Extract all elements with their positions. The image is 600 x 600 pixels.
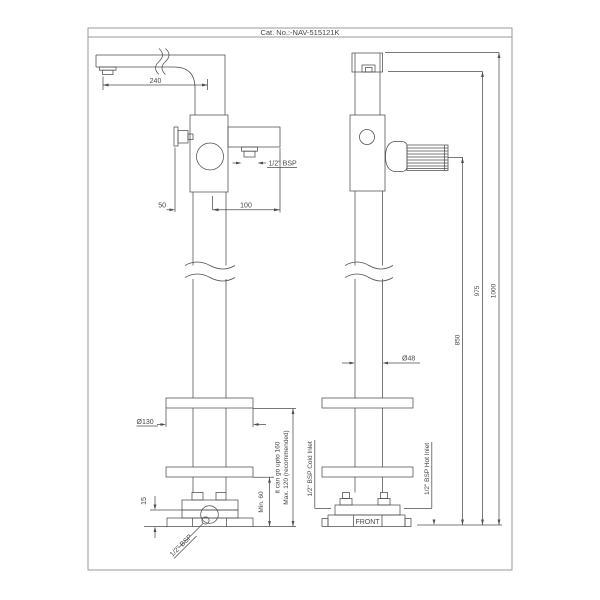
handle-neck (386, 142, 408, 172)
base-tab-top (343, 493, 350, 499)
upper-flange-front (322, 398, 413, 408)
upper-flange-side (166, 398, 253, 408)
column-front (355, 191, 383, 398)
dim-outlet-thread: 1/2" BSP (233, 161, 298, 168)
spout-front-cap-inner (355, 53, 380, 72)
dim-min-height-label: Min. 60 (258, 491, 265, 513)
hot-inlet-label: 1/2" BSP Hot Inlet (424, 443, 431, 495)
dim-handle-height: 850 (448, 158, 464, 526)
technical-drawing: Cat. No.:-NAV-515121K (0, 0, 600, 600)
outlet-fitting-lip (242, 147, 258, 151)
floor-extension-line (417, 520, 502, 526)
aerator-front-lip (362, 65, 375, 72)
aerator-front (366, 68, 373, 73)
column-break-line (185, 274, 235, 281)
aerator-lip (100, 67, 117, 70)
dim-outlet-thread-label: 1/2" BSP (269, 161, 297, 168)
column-break-line (345, 262, 393, 269)
column-below-flange-front (355, 477, 383, 493)
dim-handle-offset-label: 50 (158, 203, 166, 210)
dim-handle-offset: 50 (158, 148, 175, 213)
lower-flange-front (322, 467, 413, 477)
column-break-line (345, 274, 393, 281)
spout-break-line (156, 49, 163, 75)
dim-base-inlet-thread-label: 1/2" BSP (169, 533, 194, 558)
dim-spout-reach: 240 (103, 77, 208, 91)
column-side (193, 192, 226, 398)
dim-min-height: Min. 60 (253, 477, 274, 526)
front-marking-label: FRONT (355, 519, 380, 526)
side-view-dimensions: 240 1/2" BSP 50 100 Ø130 (103, 77, 297, 559)
dim-column-diameter: Ø48 (342, 356, 420, 365)
base-tab (192, 493, 203, 501)
aerator-body (103, 70, 114, 74)
spout-front-cap (352, 53, 383, 72)
diverter-knob (178, 131, 188, 144)
base-plate-steps (193, 518, 227, 527)
dim-spout-reach-label: 240 (150, 78, 162, 85)
outlet-arm (228, 127, 280, 147)
dim-cold-inlet: 1/2" BSP Cold Inlet (307, 440, 331, 509)
dim-flange-diameter: Ø130 (137, 409, 267, 428)
cold-inlet-label: 1/2" BSP Cold Inlet (307, 441, 314, 496)
drawing-sheet: Cat. No.:-NAV-515121K (0, 0, 600, 600)
spout-break-line (162, 49, 169, 75)
dim-overall-height: 1000 (385, 53, 500, 526)
column-below-flange (193, 477, 226, 493)
base-tab (378, 499, 390, 506)
dim-flange-diameter-label: Ø130 (137, 419, 154, 426)
base-wing (322, 519, 328, 527)
valve-body-front (350, 115, 385, 191)
dim-max-height-label-2: it can go upto 160 (275, 441, 282, 493)
column-between-flanges-front (355, 408, 383, 467)
outlet-fitting (244, 151, 255, 157)
column-break-line (185, 262, 235, 269)
base-tab (216, 493, 226, 501)
base-plate (167, 518, 253, 527)
dim-arm-length-label: 100 (240, 202, 252, 209)
dim-column-diameter-label: Ø48 (402, 356, 415, 363)
base-block-front (335, 505, 400, 515)
valve-body (190, 115, 228, 192)
side-view (96, 49, 280, 527)
upper-column-front (355, 72, 380, 115)
dim-base-plate-height-label: 15 (141, 497, 148, 505)
dim-arm-length: 100 (213, 148, 281, 213)
diverter-knob-cap (174, 127, 178, 146)
knurled-handle (407, 145, 448, 171)
valve-cartridge-circle (197, 143, 224, 170)
base-wing (405, 519, 411, 527)
dim-handle-height-label: 850 (455, 334, 462, 345)
front-view-dimensions: Ø48 850 975 1000 (307, 53, 502, 526)
base-tab (340, 499, 352, 506)
dim-base-inlet-thread: 1/2" BSP (169, 524, 203, 559)
dim-spout-height: 975 (388, 72, 484, 526)
title-block: Cat. No.:-NAV-515121K (88, 28, 512, 570)
column-between-flanges (193, 408, 226, 467)
dim-overall-height-label: 1000 (491, 283, 498, 298)
dim-base-plate-height: 15 (141, 496, 182, 538)
lower-flange-side (166, 467, 253, 477)
dim-max-height-label-1: Max. 120 (recommended) (283, 430, 290, 504)
dim-spout-height-label: 975 (474, 285, 481, 296)
drawing-border (88, 28, 512, 570)
catalog-number: Cat. No.:-NAV-515121K (260, 28, 339, 37)
base-tab-top (381, 493, 388, 499)
base-block-upper (182, 500, 238, 510)
knurl-hatch (408, 148, 448, 169)
dim-hot-inlet: 1/2" BSP Hot Inlet (404, 442, 432, 509)
diverter-knob-stem (188, 134, 193, 140)
diverter-button-circle (360, 130, 375, 145)
base-inlet-boss (201, 506, 219, 524)
base-block-middle (182, 510, 238, 518)
